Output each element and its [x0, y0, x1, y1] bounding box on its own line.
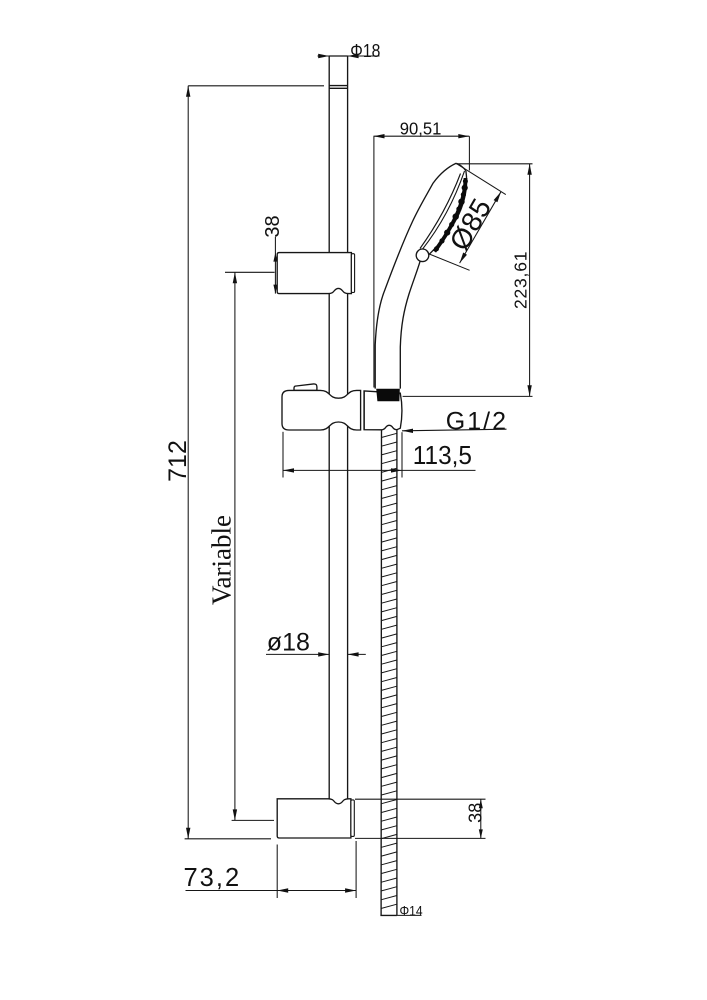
svg-text:G1/2: G1/2 [446, 408, 508, 436]
svg-text:73,2: 73,2 [184, 864, 242, 892]
svg-text:113,5: 113,5 [413, 441, 472, 470]
svg-text:90,51: 90,51 [400, 119, 442, 138]
svg-text:Φ14: Φ14 [400, 903, 423, 919]
svg-text:Φ18: Φ18 [350, 40, 380, 62]
svg-text:ø18: ø18 [267, 629, 310, 657]
svg-text:712: 712 [164, 440, 192, 482]
svg-text:223,61: 223,61 [511, 251, 531, 309]
svg-text:Variable: Variable [207, 515, 237, 605]
svg-text:38: 38 [262, 215, 284, 237]
svg-text:38: 38 [465, 803, 485, 823]
